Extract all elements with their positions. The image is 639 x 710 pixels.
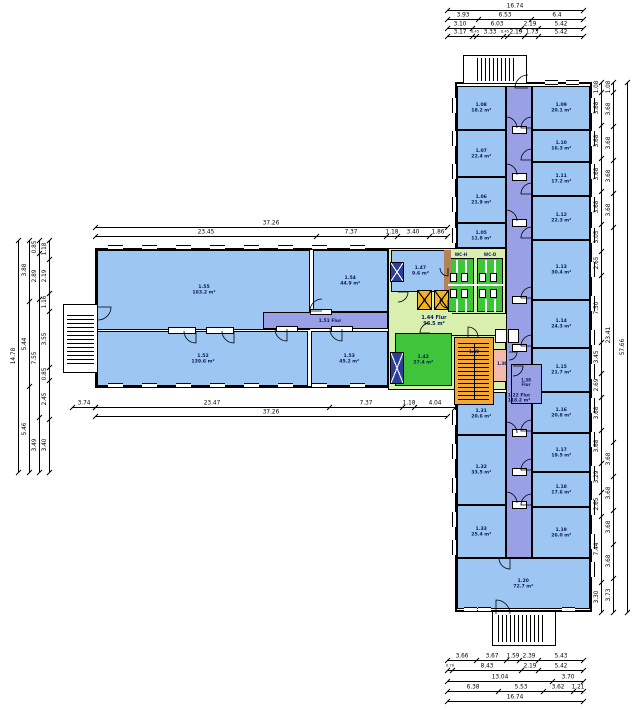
dim-value: 1.73 [526,28,539,34]
dim-tick [580,658,586,664]
dim-value: 3.68 [605,453,611,466]
dim-value: 3.67 [485,652,498,658]
room-label: 1.31 20.6 m² [472,408,492,418]
dim-value: 3.68 [605,102,611,115]
stair-treads [477,58,517,81]
dim-value: 0.45 [501,29,509,33]
dim-value: 1.18 [402,399,415,405]
room: 1.17 19.5 m² [532,433,590,472]
dim-value: 0.85 [41,367,47,380]
room: 1.53 45.2 m² [311,331,388,386]
dim-line [18,240,19,472]
dim-tick [444,414,450,420]
dim-value: 3.68 [593,440,599,453]
dim-value: 3.68 [605,204,611,217]
room-label: 1.08 18.2 m² [472,103,492,113]
dim-value: 1.08 [605,81,611,94]
dim-tick [26,470,32,476]
duct-shaft [390,352,404,384]
dim-value: 16.74 [507,693,523,699]
dim-tick [444,225,450,231]
dim-value: 7.44 [593,543,599,556]
window [278,245,293,250]
window [452,98,457,113]
room-label: 1.09 20.1 m² [551,103,571,113]
dim-line [95,416,447,417]
dim-value: 2.65 [593,256,599,269]
elevator-shaft [434,290,449,310]
window [312,383,327,388]
fixture-box [450,273,457,282]
dim-value: 5.42 [555,20,568,26]
dim-value: 3.68 [593,135,599,148]
dim-value: 3.29 [593,471,599,484]
window [452,131,457,146]
room-label: 1.12 22.3 m² [551,213,571,223]
fixture-box [276,326,298,332]
dim-tick [580,668,586,674]
dim-value: 3.68 [605,521,611,534]
room-label: 1.07 22.4 m² [472,148,492,158]
dim-line [447,691,583,692]
window [452,478,457,493]
dim-tick [580,699,586,705]
room: 1.20 72.7 m² [457,558,590,609]
room-label: 1.52 139.6 m² [191,353,214,363]
fixture-box [512,429,527,437]
room-label: 1.10 16.3 m² [551,141,571,151]
room-label: 1.15 21.7 m² [551,365,571,375]
room-label: 1.16 20.8 m² [551,407,571,417]
dim-value: 2.69 [593,378,599,391]
dim-value: 3.30 [593,591,599,604]
dim-value: 3.68 [593,201,599,214]
dim-value: 13.04 [492,673,508,679]
window [452,164,457,179]
dim-value: 2.89 [31,270,37,283]
dim-value: 3.70 [562,673,575,679]
window [244,383,259,388]
room-label: 1.05 11.8 m² [472,230,492,240]
dim-value: 0.85 [31,240,37,253]
dim-value: 7.37 [345,228,358,234]
room: 1.14 24.3 m² [532,300,590,348]
dim-value: 3.68 [605,554,611,567]
dim-value: 3.05 [593,231,599,244]
floor-plan-canvas: 1.55 163.2 m²1.54 44.9 m²1.52 139.6 m²1.… [0,0,639,710]
dim-tick [15,470,21,476]
corridor [506,86,532,558]
window [176,245,191,250]
window [452,444,457,459]
window [590,562,595,577]
dim-value: 3.40 [41,439,47,452]
window [210,245,225,250]
room: 1.19 26.0 m² [532,507,590,558]
dim-line [49,240,50,472]
dim-value: 2.19 [41,269,47,282]
dim-value: 6.4 [553,11,562,17]
fixture-box [508,329,519,343]
divider-line [465,299,467,312]
dim-line [627,82,628,612]
dim-value: 37.26 [263,408,279,414]
dim-value: 3.68 [593,407,599,420]
fixture-box [512,126,527,134]
room: 1.11 17.2 m² [532,162,590,196]
dim-value: 3.68 [605,136,611,149]
dim-tick [444,234,450,240]
fixture-box [331,326,353,332]
dim-value: 7.50 [593,302,599,315]
dim-value: 6.03 [490,20,503,26]
room-label: 1.14 24.3 m² [551,319,571,329]
fixture-box [512,468,527,476]
dim-value: 1.18 [385,228,398,234]
dim-value: 3.68 [605,487,611,500]
room-label: 1.18 17.6 m² [551,484,571,494]
room: 1.52 139.6 m² [97,331,308,386]
room: 1.05 11.8 m² [457,223,506,248]
divider-line [465,260,467,273]
window [452,197,457,212]
window [562,607,575,612]
dim-value: 6.38 [466,683,479,689]
dim-value: 3.73 [605,588,611,601]
fixture-box [479,273,486,282]
stair-treads [67,313,94,364]
dim-value: 1.18 [41,243,47,256]
dim-line [447,36,583,37]
dim-value: 3.40 [407,228,420,234]
fixture-box [206,327,234,334]
dim-value: 3.55 [41,333,47,346]
dim-tick [598,610,604,616]
window [478,607,491,612]
dim-line [447,681,583,682]
fixture-box [479,289,486,298]
window [452,228,457,243]
fixture-box [495,329,507,343]
dim-line [95,236,447,237]
fixture-box [512,296,527,304]
room: 1.06 21.9 m² [457,177,506,223]
dim-line [447,670,583,671]
dim-tick [610,610,616,616]
room-label: 1.32 33.5 m² [472,465,492,475]
divider-line [456,260,458,273]
elevator-shaft [417,290,432,310]
room: 1.18 17.6 m² [532,472,590,507]
dim-value: 1.21 [572,683,585,689]
window [350,245,365,250]
fixture-box [490,289,497,298]
dim-value: 5.44 [21,337,27,350]
dim-value: 3.68 [593,102,599,115]
dim-tick [580,26,586,32]
dim-value: 2.19 [524,20,537,26]
room: 1.13 30.4 m² [532,240,590,300]
window [278,383,293,388]
dim-value: 23.41 [605,327,611,343]
dim-value: 37.26 [263,219,279,225]
room-label: 1.53 45.2 m² [340,353,360,363]
dim-line [601,82,602,612]
dim-value: 2.65 [593,498,599,511]
dim-value: 3.68 [593,168,599,181]
room: 1.54 44.9 m² [313,250,388,312]
dim-value: 3.93 [456,11,469,17]
dim-line [72,407,95,408]
fixture-box [461,289,468,298]
divider-line [456,299,458,312]
room-label: 1.20 72.7 m² [514,578,534,588]
duct-shaft [390,262,404,282]
window [590,330,595,345]
room: 1.10 16.3 m² [532,130,590,162]
window [590,364,595,379]
window [210,383,225,388]
corridor [511,364,542,404]
room-label: 1.06 21.9 m² [472,195,492,205]
fixture-box [490,273,497,282]
window [452,540,457,555]
room-label: 1.17 19.5 m² [551,447,571,457]
dim-value: 3.33 [484,28,497,34]
dim-tick [624,610,630,616]
dim-tick [580,34,586,40]
dim-value: 3.88 [21,264,27,277]
window [142,383,157,388]
dim-value: 5.42 [555,662,568,668]
window [452,512,457,527]
dim-value: 1.86 [432,228,445,234]
room-label: 1.55 163.2 m² [192,285,215,295]
divider-line [448,284,503,286]
dim-tick [580,17,586,23]
room-label: 1.47 9.6 m² [412,266,429,276]
dim-value: 3.62 [552,683,565,689]
dim-value: 23.47 [204,399,220,405]
fixture-box [512,344,527,352]
window [176,383,191,388]
dim-value: 57.66 [619,339,625,355]
dim-value: 3.68 [605,170,611,183]
window [142,245,157,250]
room: 1.12 22.3 m² [532,196,590,240]
dim-value: 5.42 [555,28,568,34]
room-label: 1.11 17.2 m² [551,174,571,184]
dim-line [447,701,583,702]
dim-value: 0.70 [446,663,454,667]
fixture-box [310,309,332,315]
room: 1.08 18.2 m² [457,86,506,130]
dim-value: 7.37 [360,399,373,405]
divider-line [485,260,487,273]
fixture-box [512,501,527,509]
dim-value: 23.45 [198,228,214,234]
room-label: 1.54 44.9 m² [341,276,361,286]
window [312,245,327,250]
dim-tick [36,470,42,476]
dim-value: 4.04 [428,399,441,405]
room-label: 1.42 27.4 m² [414,354,434,364]
dim-value: 16.74 [507,2,523,8]
window [464,607,477,612]
divider-line [485,299,487,312]
dim-value: 2.19 [524,662,537,668]
dim-value: 3.45 [593,351,599,364]
stair-treads [498,615,544,642]
divider-line [474,343,475,400]
room-label: 1.13 30.4 m² [551,265,571,275]
dim-value: 14.78 [10,348,16,364]
room: 1.07 22.4 m² [457,130,506,177]
fixture-box [450,289,457,298]
window [545,80,558,85]
dim-tick [46,470,52,476]
dim-value: 8.43 [481,662,494,668]
room-label: 1.19 26.0 m² [551,527,571,537]
dim-value: 2.45 [41,393,47,406]
dim-value: 3.10 [453,20,466,26]
dim-value: 1.59 [507,652,520,658]
dim-value: 6.53 [499,11,512,17]
dim-value: 0.45 [471,29,479,33]
dim-value: 1.16 [41,296,47,309]
dim-value: 1.08 [593,80,599,93]
divider-line [494,299,496,312]
dim-value: 5.43 [555,652,568,658]
dim-value: 3.49 [31,438,37,451]
dim-tick [580,8,586,14]
dim-value: 5.46 [21,423,27,436]
room: 1.09 20.1 m² [532,86,590,130]
window [350,383,365,388]
dim-value: 7.55 [31,352,37,365]
room-label: 1.33 25.4 m² [472,526,492,536]
dim-value: 2.19 [510,28,523,34]
dim-line [447,660,583,661]
dim-value: 3.74 [77,399,90,405]
room: 1.32 33.5 m² [457,435,506,505]
fixture-box [512,173,527,181]
window [452,410,457,425]
room: 1.33 25.4 m² [457,505,506,558]
divider-line [494,260,496,273]
window [566,80,579,85]
dim-value: 2.39 [523,652,536,658]
fixture-box [512,219,527,227]
fixture-box [168,327,196,334]
dim-value: 3.66 [455,652,468,658]
window [244,245,259,250]
dim-value: 5.53 [515,683,528,689]
window [108,245,123,250]
dim-value: 3.17 [453,28,466,34]
window [108,383,123,388]
fixture-box [461,273,468,282]
